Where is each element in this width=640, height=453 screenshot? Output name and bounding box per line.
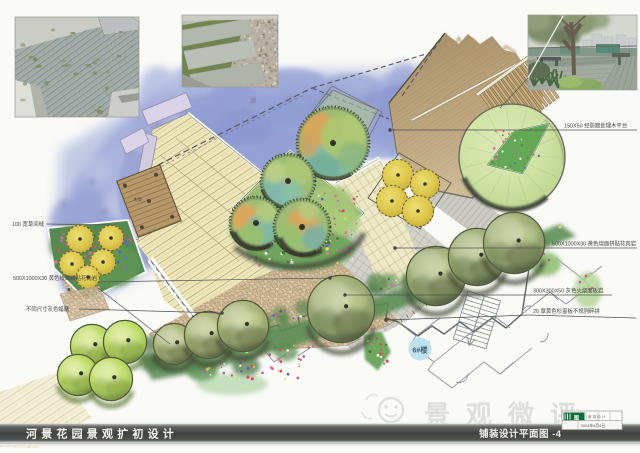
svg-text:河景花园景观扩初设计: 河景花园景观扩初设计 <box>26 427 178 441</box>
svg-text:铺装设计平面图 -4: 铺装设计平面图 -4 <box>479 428 562 440</box>
svg-text:景 观 设 计: 景 观 设 计 <box>588 414 606 419</box>
svg-text:2004年5月4日: 2004年5月4日 <box>581 423 605 428</box>
